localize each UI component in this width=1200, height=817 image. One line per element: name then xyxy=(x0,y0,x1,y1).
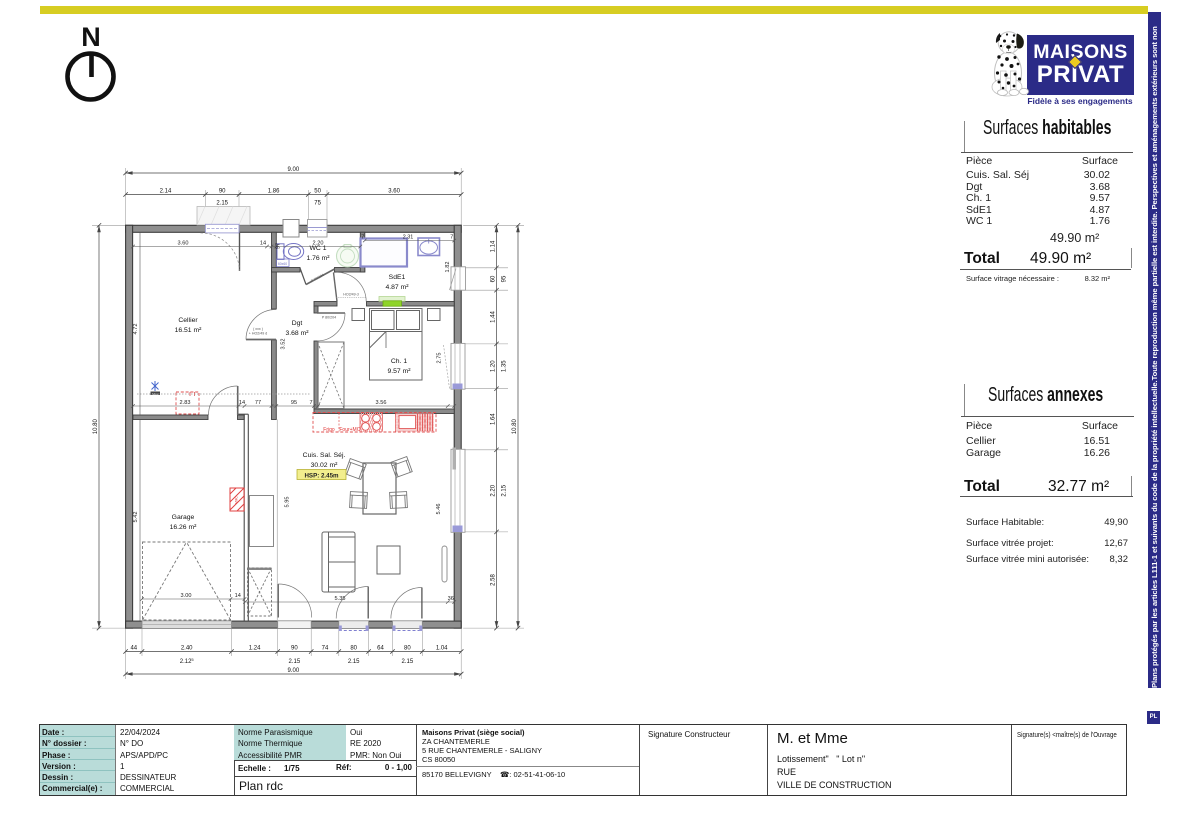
svg-text:Cuis. Sal. Séj.: Cuis. Sal. Séj. xyxy=(303,452,346,459)
svg-text:2.15: 2.15 xyxy=(348,659,360,665)
svg-text:SdE1: SdE1 xyxy=(389,274,406,281)
svg-text:3.60: 3.60 xyxy=(388,189,400,195)
svg-text:1.82: 1.82 xyxy=(445,262,451,273)
svg-text:4.87 m²: 4.87 m² xyxy=(385,284,409,291)
svg-text:90: 90 xyxy=(291,646,298,652)
svg-text:2.75: 2.75 xyxy=(437,353,443,364)
svg-text:90: 90 xyxy=(219,189,226,195)
svg-text:77: 77 xyxy=(255,400,261,406)
svg-text:80: 80 xyxy=(350,646,357,652)
svg-text:2.20: 2.20 xyxy=(491,484,497,496)
svg-text:Garage: Garage xyxy=(172,514,195,521)
svg-text:P 70/204: P 70/204 xyxy=(310,273,325,283)
svg-text:74: 74 xyxy=(322,646,329,652)
svg-text:3.52: 3.52 xyxy=(281,339,287,350)
svg-text:9.57 m²: 9.57 m² xyxy=(387,368,411,375)
svg-text:5.95: 5.95 xyxy=(285,497,291,508)
svg-text:2.15: 2.15 xyxy=(402,659,414,665)
svg-text:5.42: 5.42 xyxy=(133,512,139,523)
svg-text:Dgt: Dgt xyxy=(292,320,303,327)
svg-text:44: 44 xyxy=(130,646,137,652)
svg-text:64: 64 xyxy=(377,646,384,652)
svg-text:1.64: 1.64 xyxy=(491,413,497,425)
svg-text:80: 80 xyxy=(404,646,411,652)
svg-text:1.14: 1.14 xyxy=(491,240,497,252)
svg-text:2.83: 2.83 xyxy=(180,400,191,406)
svg-text:50: 50 xyxy=(314,189,321,195)
svg-text:10.80: 10.80 xyxy=(93,419,99,435)
svg-text:2.15: 2.15 xyxy=(216,201,228,207)
svg-text:95: 95 xyxy=(502,275,508,282)
svg-text:60x60: 60x60 xyxy=(278,262,287,266)
svg-text:7: 7 xyxy=(361,235,364,241)
svg-text:1.20: 1.20 xyxy=(491,360,497,372)
svg-text:HO2/49 d: HO2/49 d xyxy=(343,293,358,297)
svg-text:Ch. 1: Ch. 1 xyxy=(391,358,407,365)
svg-text:2.14: 2.14 xyxy=(160,189,172,195)
svg-text:60: 60 xyxy=(491,275,497,282)
svg-text:14: 14 xyxy=(260,241,266,247)
svg-text:2.15: 2.15 xyxy=(502,484,508,496)
svg-text:14: 14 xyxy=(235,593,241,599)
svg-text:9.00: 9.00 xyxy=(288,668,300,674)
svg-text:WC 1: WC 1 xyxy=(310,245,327,252)
svg-text:VMC: VMC xyxy=(235,496,239,504)
svg-text:3.56: 3.56 xyxy=(376,400,387,406)
svg-text:36: 36 xyxy=(448,596,454,602)
svg-text:1.86: 1.86 xyxy=(268,189,280,195)
svg-text:2.15: 2.15 xyxy=(289,659,301,665)
svg-text:16.51 m²: 16.51 m² xyxy=(175,327,203,334)
svg-text:1.04: 1.04 xyxy=(436,646,448,652)
svg-text:9.00: 9.00 xyxy=(288,167,300,173)
svg-text:95: 95 xyxy=(291,400,297,406)
svg-text:1.76 m²: 1.76 m² xyxy=(306,255,330,262)
svg-text:1.35: 1.35 xyxy=(502,360,508,372)
svg-text:4.72: 4.72 xyxy=(133,324,139,335)
svg-text:( xxx ): ( xxx ) xyxy=(253,327,263,331)
svg-text:2.125: 2.125 xyxy=(180,657,195,665)
svg-text:14: 14 xyxy=(239,400,245,406)
svg-text:30.02 m²: 30.02 m² xyxy=(311,462,339,469)
svg-text:+ HO2/49 d: + HO2/49 d xyxy=(249,332,267,336)
svg-text:HSP: 2.45m: HSP: 2.45m xyxy=(304,472,339,479)
svg-text:2.58: 2.58 xyxy=(491,574,497,586)
svg-text:3.60: 3.60 xyxy=(178,241,189,247)
svg-text:2.31: 2.31 xyxy=(403,235,414,241)
svg-text:1.44: 1.44 xyxy=(491,311,497,323)
svg-text:1.24: 1.24 xyxy=(249,646,261,652)
svg-text:16.26 m²: 16.26 m² xyxy=(170,524,198,531)
svg-text:Frigo: Frigo xyxy=(323,427,335,433)
svg-text:5.35: 5.35 xyxy=(335,596,346,602)
svg-text:7: 7 xyxy=(309,400,312,406)
svg-text:2.40: 2.40 xyxy=(181,646,193,652)
svg-text:P 80/204: P 80/204 xyxy=(322,316,336,320)
svg-text:3.00: 3.00 xyxy=(181,593,192,599)
svg-text:75: 75 xyxy=(314,201,321,207)
svg-text:Four+MO: Four+MO xyxy=(339,427,360,433)
svg-text:10.80: 10.80 xyxy=(512,419,518,435)
svg-text:Cellier: Cellier xyxy=(178,317,198,324)
svg-text:97: 97 xyxy=(276,243,282,249)
svg-text:5.46: 5.46 xyxy=(436,504,442,515)
svg-text:3.68 m²: 3.68 m² xyxy=(285,330,309,337)
svg-text:7: 7 xyxy=(450,235,453,241)
